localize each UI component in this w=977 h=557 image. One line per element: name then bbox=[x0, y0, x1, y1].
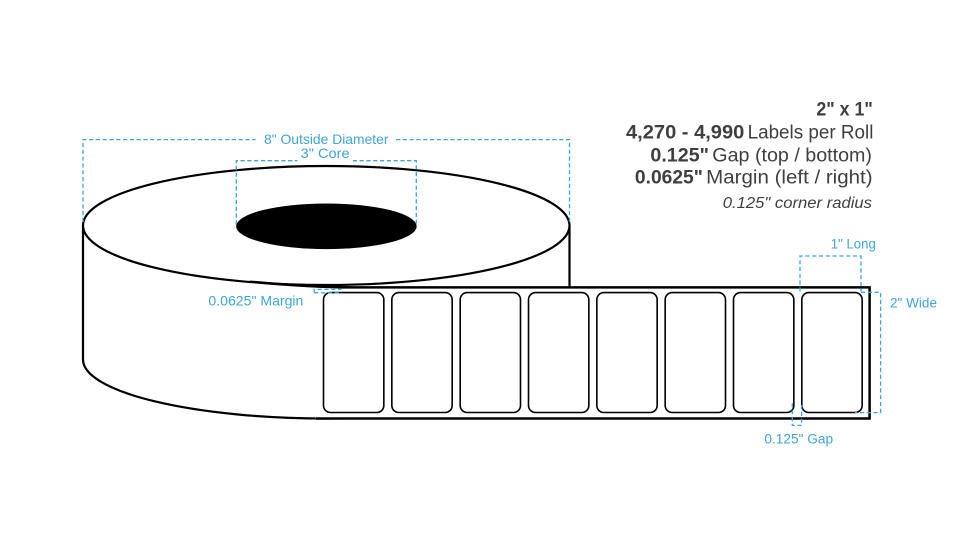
svg-text:4,270 - 4,990: 4,270 - 4,990 bbox=[626, 123, 744, 144]
svg-text:0.125" Gap: 0.125" Gap bbox=[764, 431, 833, 447]
svg-text:0.125" corner radius: 0.125" corner radius bbox=[723, 195, 872, 212]
svg-text:2" Wide: 2" Wide bbox=[890, 295, 937, 311]
svg-text:1" Long: 1" Long bbox=[831, 236, 876, 252]
svg-text:3" Core: 3" Core bbox=[301, 145, 350, 161]
svg-text:Margin (left / right): Margin (left / right) bbox=[706, 167, 872, 188]
svg-text:Labels per Roll: Labels per Roll bbox=[748, 123, 874, 144]
svg-text:2" x 1": 2" x 1" bbox=[816, 100, 872, 121]
svg-text:0.0625" Margin: 0.0625" Margin bbox=[208, 293, 303, 309]
svg-text:Gap (top / bottom): Gap (top / bottom) bbox=[712, 145, 872, 166]
svg-text:0.125": 0.125" bbox=[650, 145, 709, 166]
svg-text:0.0625": 0.0625" bbox=[635, 167, 703, 188]
